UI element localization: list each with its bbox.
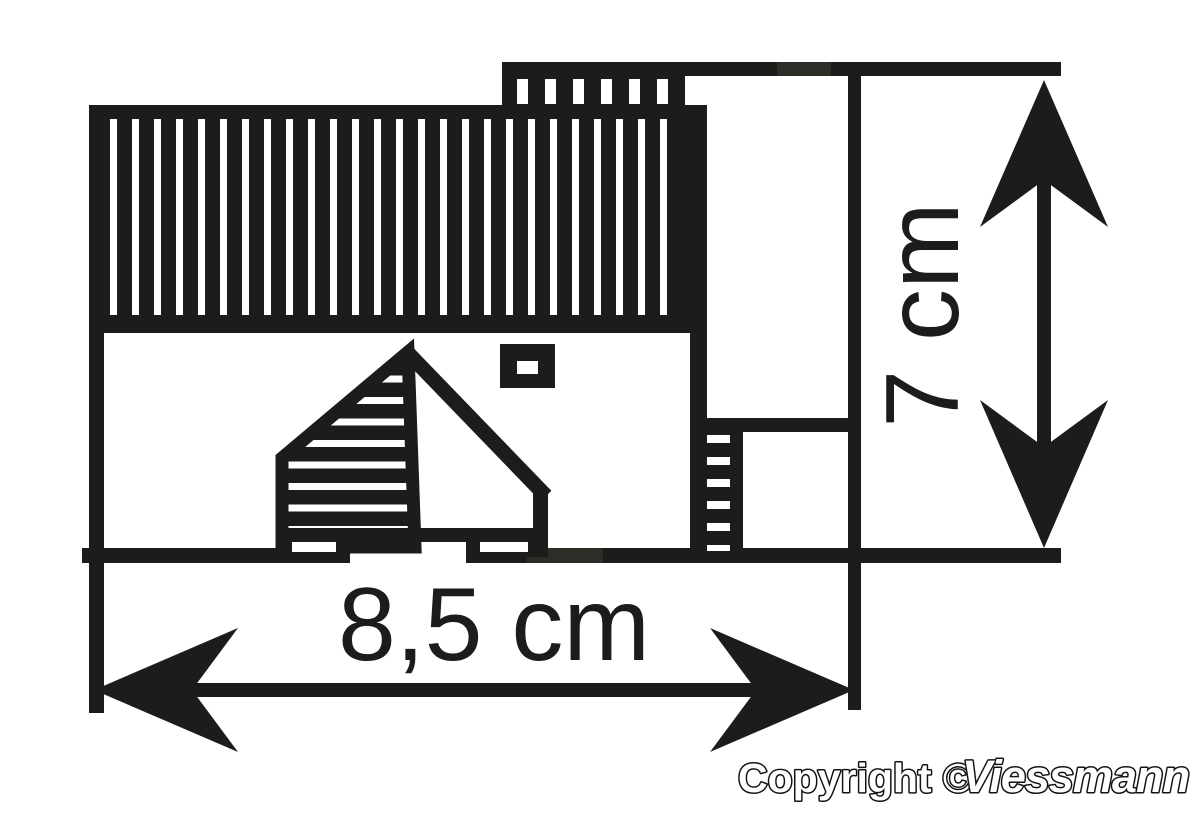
brand-logo: Viessmann	[962, 751, 1189, 802]
width-dimension-label: 8,5 cm	[338, 567, 650, 683]
ladder-rungs	[707, 435, 730, 551]
ladder	[690, 418, 743, 553]
height-dimension-label: 7 cm	[865, 202, 981, 427]
window	[500, 344, 555, 388]
gable-base	[282, 528, 548, 542]
width-dimension-shaft	[185, 683, 760, 697]
rear-building-top-edge-soft-segment	[777, 62, 831, 76]
right-corner-post	[690, 333, 707, 418]
width-dimension: 8,5 cm	[94, 567, 854, 752]
gable-foot-right-notch	[480, 542, 528, 552]
main-roof-hatching	[110, 119, 667, 315]
gable-foot-left-notch	[292, 542, 336, 552]
left-wall	[89, 333, 104, 713]
window-pane	[517, 361, 538, 374]
copyright-text: Copyright © Viessmann	[738, 751, 1189, 802]
height-dimension: 7 cm	[865, 80, 1108, 548]
drawing-canvas: 8,5 cm 7 cm Copyright © Viessmann	[0, 0, 1200, 822]
dimension-drawing: 8,5 cm 7 cm Copyright © Viessmann	[0, 0, 1200, 822]
gable-hatched-face	[282, 352, 415, 547]
right-wall	[848, 76, 861, 710]
copyright-label: Copyright ©	[738, 755, 973, 801]
